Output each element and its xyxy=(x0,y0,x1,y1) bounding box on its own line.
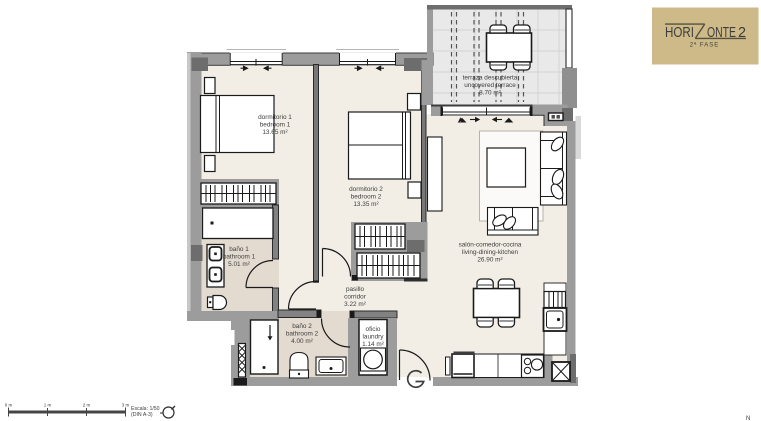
svg-text:HORI: HORI xyxy=(665,25,694,41)
svg-text:bedroom 2: bedroom 2 xyxy=(351,194,382,201)
svg-text:baño 1: baño 1 xyxy=(229,246,249,253)
svg-text:5.01 m²: 5.01 m² xyxy=(228,261,250,268)
svg-text:2 m: 2 m xyxy=(83,403,91,408)
svg-text:0 m: 0 m xyxy=(5,403,13,408)
svg-text:terraza descubierta: terraza descubierta xyxy=(463,75,518,82)
svg-text:laundry: laundry xyxy=(363,334,385,341)
svg-text:bathroom 2: bathroom 2 xyxy=(286,331,319,338)
svg-text:dormitorio 1: dormitorio 1 xyxy=(258,114,292,121)
svg-text:oficio: oficio xyxy=(366,326,381,333)
svg-text:N: N xyxy=(746,416,750,421)
svg-text:8.70 m²: 8.70 m² xyxy=(479,90,501,97)
svg-text:bathroom 1: bathroom 1 xyxy=(223,254,256,261)
svg-text:26.90 m²: 26.90 m² xyxy=(477,257,502,264)
svg-text:salón-comedor-cocina: salón-comedor-cocina xyxy=(459,242,522,249)
svg-text:1 m: 1 m xyxy=(44,403,52,408)
svg-text:living-dining-kitchen: living-dining-kitchen xyxy=(462,249,519,256)
svg-text:uncovered terrace: uncovered terrace xyxy=(464,82,516,89)
svg-text:bedroom 1: bedroom 1 xyxy=(260,122,291,129)
svg-text:3 m: 3 m xyxy=(122,403,130,408)
svg-text:3.22 m²: 3.22 m² xyxy=(344,301,366,308)
svg-text:(DIN A-3): (DIN A-3) xyxy=(131,412,153,418)
svg-text:2ª FASE: 2ª FASE xyxy=(690,42,720,49)
svg-text:4.00 m²: 4.00 m² xyxy=(291,338,313,345)
svg-text:13.65 m²: 13.65 m² xyxy=(262,129,287,136)
svg-text:dormitorio 2: dormitorio 2 xyxy=(349,186,383,193)
svg-text:corridor: corridor xyxy=(344,294,367,301)
svg-text:13.35 m²: 13.35 m² xyxy=(353,201,378,208)
svg-text:pasillo: pasillo xyxy=(346,286,365,293)
svg-text:baño 2: baño 2 xyxy=(292,323,312,330)
svg-text:1.14 m²: 1.14 m² xyxy=(362,341,384,348)
